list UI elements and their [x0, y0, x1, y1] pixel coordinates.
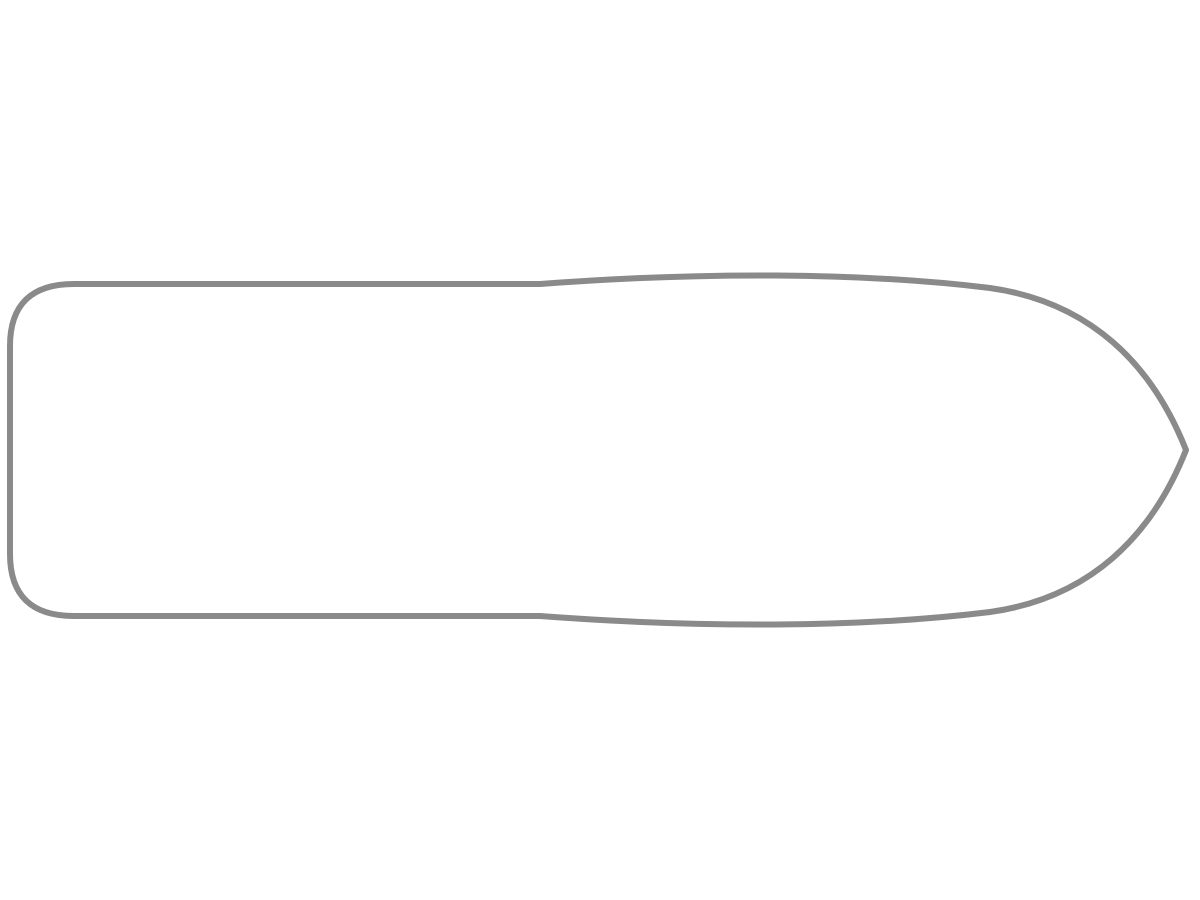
hull-outline	[10, 275, 1186, 624]
boat-floorplan-canvas	[0, 0, 1200, 900]
floorplan-svg	[0, 0, 1200, 900]
